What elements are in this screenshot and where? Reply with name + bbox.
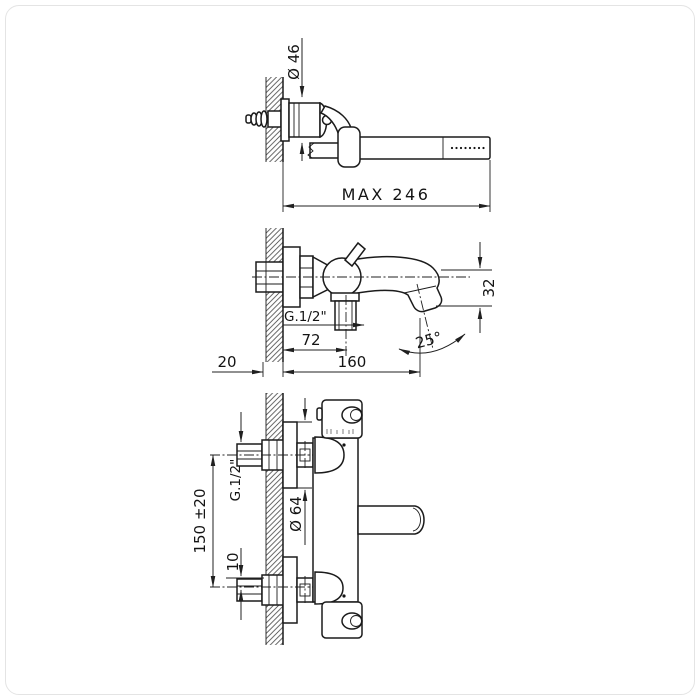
bracket-flange <box>281 99 289 141</box>
screw-dot <box>342 594 345 597</box>
temperature-knob <box>317 400 362 438</box>
flow-button <box>342 613 362 629</box>
dim-label-spout-center: 72 <box>301 331 320 349</box>
grip-collar <box>338 127 360 167</box>
dim-label-inlet-thread: G.1/2" <box>228 459 244 502</box>
technical-drawing-canvas: Ø 46 MAX 246 <box>0 0 700 700</box>
mixer-body <box>313 437 424 604</box>
dim-label-max-length: MAX 246 <box>342 185 431 204</box>
dimension-max-246: MAX 246 <box>283 160 490 212</box>
hand-shower <box>308 106 490 167</box>
dimension-angle-25: 25° <box>399 328 465 353</box>
dim-label-angle: 25° <box>414 328 444 352</box>
dim-label-outlet-thread: G.1/2" <box>284 309 327 325</box>
thermostatic-mixer-drawing: 150 ±20 G.1/2" 10 Ø 64 <box>191 393 424 645</box>
spout <box>352 257 442 312</box>
dim-label-reach: 160 <box>338 353 367 371</box>
knob-tab <box>317 408 322 420</box>
dim-label-wall: 20 <box>217 353 236 371</box>
dim-label-drop: 32 <box>480 278 498 297</box>
safety-button <box>342 407 362 423</box>
inlet-stub <box>310 143 340 158</box>
screw-dot <box>342 443 345 446</box>
spout <box>358 506 424 534</box>
escutcheon-flange <box>283 557 297 623</box>
hose-connector <box>246 111 281 127</box>
wall-section <box>266 393 283 645</box>
dim-label-inlet-centers: 150 ±20 <box>191 488 209 553</box>
wall-hatching <box>266 393 283 645</box>
dim-label-flange-diameter: Ø 64 <box>287 496 305 532</box>
union-nut <box>262 575 284 605</box>
outlet-collar <box>331 293 359 301</box>
hand-shower-drawing: Ø 46 MAX 246 <box>246 38 490 212</box>
dimension-centers-150: 150 ±20 <box>191 455 213 587</box>
hose-outlet <box>335 301 356 330</box>
wall-hatching <box>266 228 283 362</box>
bath-mixer-drawing: 32 25° G.1/2" 72 20 160 <box>212 228 498 377</box>
wall-bracket <box>281 99 332 141</box>
drawing-sheet: Ø 46 MAX 246 <box>0 0 700 700</box>
top-inlet-connection <box>210 422 320 488</box>
wall-section <box>266 228 283 362</box>
flow-knob <box>322 602 362 638</box>
dim-label-offset: 10 <box>224 552 242 571</box>
dimension-drop-32: 32 <box>436 242 498 333</box>
dimension-72: 72 <box>283 331 347 350</box>
dim-label-bracket-diameter: Ø 46 <box>285 44 303 80</box>
